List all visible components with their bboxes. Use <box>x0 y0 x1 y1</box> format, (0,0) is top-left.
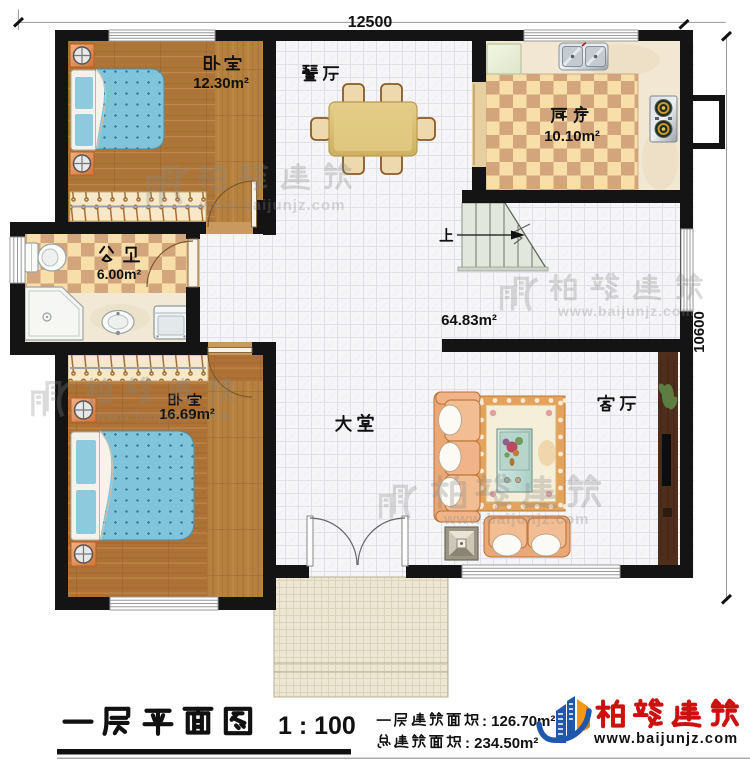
svg-text:www.baijunjz.com: www.baijunjz.com <box>199 197 345 214</box>
svg-text:6.00m²: 6.00m² <box>97 266 142 282</box>
svg-text:: 234.50m²: : 234.50m² <box>465 735 538 752</box>
svg-text:64.83m²: 64.83m² <box>441 312 497 329</box>
svg-text:www.baijunjz.com: www.baijunjz.com <box>443 511 589 528</box>
svg-text:: 126.70m²: : 126.70m² <box>482 713 555 730</box>
svg-text:10600: 10600 <box>691 311 708 353</box>
svg-text:12500: 12500 <box>348 14 393 31</box>
svg-text:www.baijunjz.com: www.baijunjz.com <box>94 407 232 423</box>
svg-text:www.baijunjz.com: www.baijunjz.com <box>593 731 738 747</box>
svg-text:1 : 100: 1 : 100 <box>278 712 356 740</box>
svg-text:www.baijunjz.com: www.baijunjz.com <box>557 303 695 319</box>
svg-text:12.30m²: 12.30m² <box>193 75 249 92</box>
svg-text:10.10m²: 10.10m² <box>544 128 600 145</box>
